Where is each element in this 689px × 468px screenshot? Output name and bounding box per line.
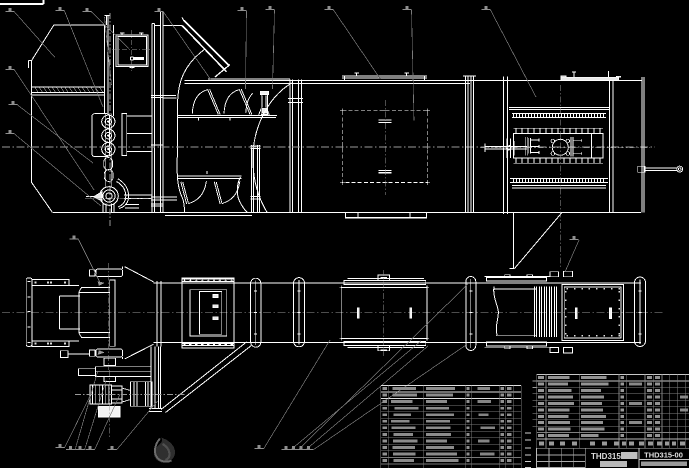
svg-text:THD315: THD315 <box>591 452 621 461</box>
svg-text:THD315-00: THD315-00 <box>644 451 683 460</box>
